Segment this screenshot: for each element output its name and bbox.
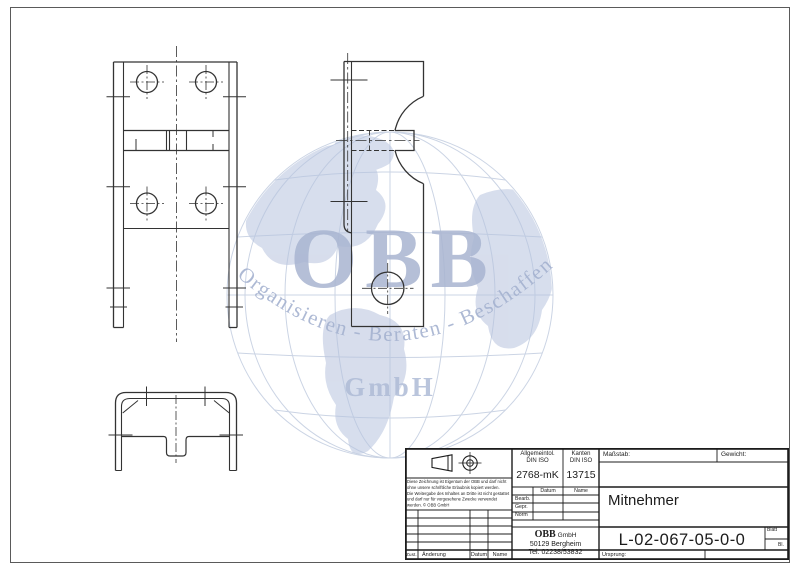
company-phone: Tel. 02238/53832 <box>512 549 599 557</box>
approval-row-bearb: Bearb. <box>515 497 530 503</box>
scale-label: Maßstab: <box>603 451 630 458</box>
drawing-page: OBB Organisieren - Beraten - Beschaffen … <box>0 0 800 566</box>
sheet-label: Blatt <box>767 528 777 534</box>
projection-symbol-icon <box>424 450 494 476</box>
company-address: 50129 Bergheim <box>512 541 599 549</box>
sheet-abbrev: Bl. <box>778 543 784 549</box>
approval-date-header: Datum <box>533 489 563 495</box>
revision-date-label: Datum <box>470 552 488 558</box>
disclaimer-text: Diese Zeichnung ist Eigentum der OBB und… <box>407 479 510 508</box>
company-name: OBB <box>535 529 556 540</box>
general-tolerance-label-2: DIN ISO <box>512 458 563 465</box>
revision-state-label: Zust. <box>406 553 417 559</box>
part-name: Mitnehmer <box>608 492 679 509</box>
drawing-number: L-02-067-05-0-0 <box>599 531 765 550</box>
title-block: Diese Zeichnung ist Eigentum der OBB und… <box>405 448 789 560</box>
front-view <box>107 46 247 342</box>
profile-view <box>109 387 244 471</box>
company-block: OBB GmbH 50129 Bergheim Tel. 02238/53832 <box>512 529 599 557</box>
side-view <box>331 53 424 327</box>
approval-row-norm: Norm <box>515 513 528 519</box>
revision-name-label: Name <box>488 552 512 558</box>
edges-label-2: DIN ISO <box>563 458 599 465</box>
edges-label-1: Kanten <box>563 451 599 458</box>
approval-name-header: Name <box>563 489 599 495</box>
edges-value: 13715 <box>563 469 599 481</box>
general-tolerance-label-1: Allgemeintol. <box>512 451 563 458</box>
company-suffix: GmbH <box>558 532 577 539</box>
weight-label: Gewicht: <box>721 451 746 458</box>
general-tolerance-value: 2768-mK <box>512 469 563 481</box>
approval-row-gepr: Gepr. <box>515 505 528 511</box>
origin-label: Ursprung: <box>602 552 626 558</box>
disclaimer-line: ohne unsere schriftliche Erlaubnis kopie… <box>407 485 510 491</box>
disclaimer-line: werden. © OBB GmbH <box>407 503 510 509</box>
revision-change-label: Änderung <box>422 552 446 558</box>
